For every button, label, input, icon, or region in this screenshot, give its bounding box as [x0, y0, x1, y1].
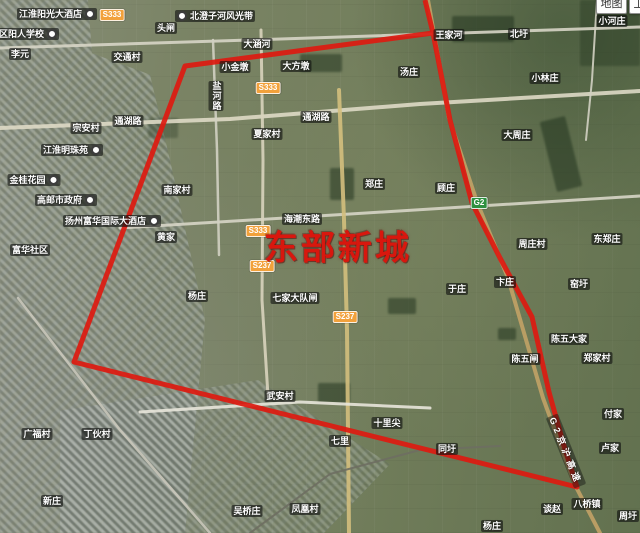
map-label: 小河庄: [596, 15, 627, 27]
road: [213, 40, 219, 255]
map-label: 通湖路: [112, 115, 143, 127]
map-label: 陈五闸: [509, 353, 540, 365]
map-label: 周庄村: [516, 238, 547, 250]
map-label: 窑圩: [568, 278, 590, 290]
map-label: 丁伙村: [81, 428, 112, 440]
map-label: 郑家村: [581, 352, 612, 364]
map-label: 于庄: [446, 283, 468, 295]
poi-dot-icon: [91, 145, 101, 155]
map-label: 李元: [9, 48, 31, 60]
map-label: 北澄子河风光带: [175, 10, 255, 22]
map-label: 王家河: [433, 29, 464, 41]
urban-area-west: [0, 0, 205, 533]
poi-dot-icon: [49, 175, 59, 185]
map-label: 大周庄: [501, 129, 532, 141]
map-label: 八桥镇: [571, 498, 602, 510]
poi-dot-icon: [47, 29, 57, 39]
map-label: 江淮明珠苑: [41, 144, 103, 156]
satellite-view-button[interactable]: 卫星: [629, 0, 640, 14]
road-badge-s333: S333: [256, 82, 281, 94]
vegetation-patch: [540, 116, 583, 192]
map-label: 广福村: [21, 428, 52, 440]
map-label: 郑庄: [363, 178, 385, 190]
map-label: 十里尖: [371, 417, 402, 429]
map-label: 北圩: [508, 28, 530, 40]
map-label: 同圩: [436, 443, 458, 455]
map-label: 汤庄: [398, 66, 420, 78]
poi-dot-icon: [85, 195, 95, 205]
map-label: 黄家: [155, 231, 177, 243]
map-label-vertical: 盐河路: [209, 81, 224, 111]
poi-dot-icon: [177, 11, 187, 21]
map-label: 东郑庄: [591, 233, 622, 245]
map-label: 小林庄: [529, 72, 560, 84]
vegetation-patch: [330, 168, 354, 200]
road-badge-g2: G2: [471, 197, 488, 209]
map-label: 扬州富华国际大酒店: [63, 215, 161, 227]
map-type-controls: 地图 卫星: [596, 0, 640, 14]
map-label: 七家大队闸: [270, 292, 319, 304]
map-view-button[interactable]: 地图: [596, 0, 627, 14]
map-label: 杨庄: [481, 520, 503, 532]
map-label: 顾庄: [435, 182, 457, 194]
map-label: 新庄: [41, 495, 63, 507]
map-label: 大方墩: [280, 60, 311, 72]
map-label: 通湖路: [300, 111, 331, 123]
map-label: 付家: [602, 408, 624, 420]
poi-dot-icon: [149, 216, 159, 226]
road: [0, 27, 640, 48]
road: [140, 402, 430, 412]
urban-area-south: [60, 380, 390, 533]
poi-dot-icon: [85, 9, 95, 19]
vegetation-patch: [148, 118, 178, 138]
map-label: 杨庄: [186, 290, 208, 302]
map-label: 南家村: [161, 184, 192, 196]
map-label: 七里: [329, 435, 351, 447]
map-label: 交通村: [111, 51, 142, 63]
map-label: 夏家村: [251, 128, 282, 140]
map-label: 周圩: [617, 510, 639, 522]
road-badge-s237: S237: [333, 311, 358, 323]
map-label: 卞庄: [494, 276, 516, 288]
map-label: 大涵河: [241, 38, 272, 50]
road: [250, 446, 500, 533]
map-label: 宗安村: [70, 122, 101, 134]
road-badge-s333: S333: [100, 9, 125, 21]
map-label: 陈五大家: [549, 333, 589, 345]
map-canvas[interactable]: 江淮阳光大酒店北澄子河风光带头闸区阳人学校李元交通村大涵河小金墩大方墩汤庄王家河…: [0, 0, 640, 533]
map-label: 区阳人学校: [0, 28, 59, 40]
map-label: 金桂花园: [7, 174, 60, 186]
map-label: 凤凰村: [289, 503, 320, 515]
map-label: 谈赵: [541, 503, 563, 515]
road: [586, 0, 597, 140]
map-label: 江淮阳光大酒店: [17, 8, 97, 20]
map-label: 武安村: [264, 390, 295, 402]
map-label: 吴桥庄: [231, 505, 262, 517]
vegetation-patch: [498, 328, 516, 340]
map-label: 高邮市政府: [35, 194, 97, 206]
map-label: 小金墩: [219, 61, 250, 73]
map-label: 卢家: [599, 442, 621, 454]
vegetation-patch: [388, 298, 416, 314]
new-town-overlay-title: 东部新城: [264, 221, 412, 270]
expressway-road-label: G2京沪高速: [546, 413, 587, 488]
map-label: 头闸: [155, 22, 177, 34]
map-screenshot: 江淮阳光大酒店北澄子河风光带头闸区阳人学校李元交通村大涵河小金墩大方墩汤庄王家河…: [0, 0, 640, 533]
vegetation-patch: [318, 383, 350, 403]
map-label: 富华社区: [10, 244, 50, 256]
